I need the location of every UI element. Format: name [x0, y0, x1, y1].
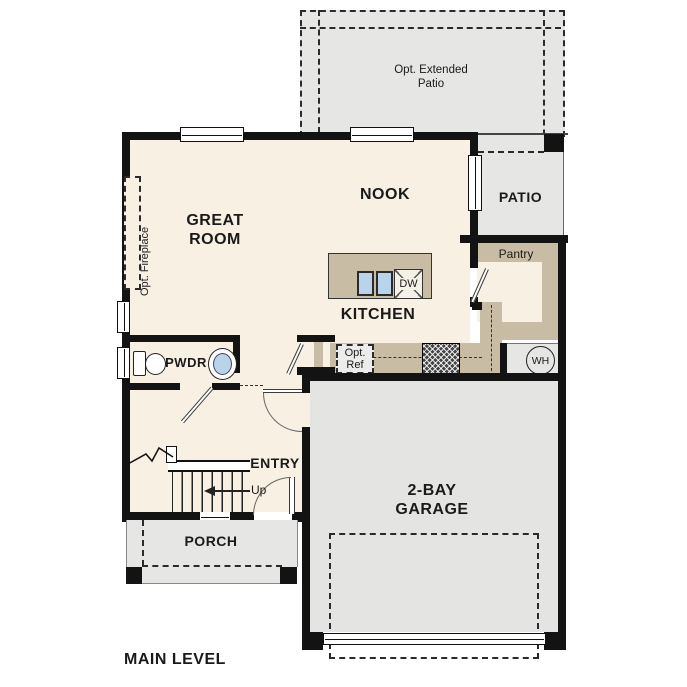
pantry-shelf-bottom — [502, 322, 562, 340]
wall-right — [558, 243, 566, 632]
nook-label: NOOK — [340, 186, 430, 205]
wall-closet-bottom — [297, 367, 335, 375]
water-heater-icon: WH — [526, 346, 555, 375]
wall-garage-top — [302, 373, 566, 381]
window-great-room-top — [180, 127, 244, 142]
porch-label: PORCH — [126, 533, 296, 550]
range-icon — [422, 343, 460, 375]
kitchen-label: KITCHEN — [328, 306, 428, 325]
extended-patio-edge-line — [300, 27, 561, 29]
wall-top — [122, 132, 478, 140]
patio-sliding-door — [468, 155, 482, 211]
wall-pwdr-bottom-left — [122, 383, 180, 390]
patio-cover-line — [478, 151, 544, 153]
stair-rail — [168, 460, 250, 472]
wall-garage-bottom-right — [544, 632, 566, 650]
stair-up-arrowhead — [204, 486, 215, 496]
wall-wh-left — [500, 343, 507, 373]
entry-label: ENTRY — [246, 455, 304, 472]
stair-up-arrow-line — [214, 490, 250, 492]
opt-refrigerator-label: Opt. Ref — [345, 347, 366, 371]
window-nook-top — [350, 127, 414, 142]
pantry-label: Pantry — [470, 247, 562, 261]
main-level-title: MAIN LEVEL — [124, 651, 284, 670]
wall-counter-corner — [472, 302, 482, 310]
opt-fireplace-label: Opt. Fireplace — [139, 196, 153, 296]
pwdr-label: PWDR — [163, 355, 209, 370]
stair-up-label: Up — [251, 483, 275, 497]
porch-dash-bottom — [142, 565, 282, 567]
garage-door — [323, 633, 546, 645]
wall-kitchen-east-upper — [470, 243, 478, 268]
floor-plan: Opt. Extended Patio PATIO 2-BAY GARAGE P… — [0, 0, 687, 687]
patio-column — [544, 134, 564, 152]
opt-refrigerator-box: Opt. Ref — [336, 344, 374, 374]
pwdr-sink-basin — [213, 353, 232, 375]
wall-pwdr-bottom-right — [212, 383, 240, 390]
wall-garage-left-upper — [302, 373, 310, 393]
wall-garage-bottom-left — [302, 632, 323, 650]
great-room-label: GREAT ROOM — [160, 212, 270, 250]
porch-step-area — [142, 567, 282, 584]
patio-label: PATIO — [478, 189, 563, 206]
wall-patio-bottom — [460, 235, 568, 243]
break-line-icon — [128, 446, 174, 468]
counter-center-line-vert — [491, 305, 492, 371]
window-left-lower — [117, 347, 130, 379]
garage-label: 2-BAY GARAGE — [370, 482, 494, 520]
closet-shelf — [314, 342, 323, 367]
dishwasher-icon: DW — [394, 269, 423, 299]
island-sink-icon — [357, 271, 393, 296]
opt-extended-patio-label: Opt. Extended Patio — [351, 64, 511, 91]
porch-post-left — [126, 567, 142, 584]
porch-post-right — [280, 567, 297, 584]
wall-pwdr-top — [122, 335, 240, 342]
hall-opening-line — [240, 385, 263, 386]
window-left-upper — [117, 301, 130, 333]
water-heater-label: WH — [532, 355, 550, 367]
dishwasher-label: DW — [398, 278, 418, 290]
wall-closet-top — [297, 335, 335, 342]
